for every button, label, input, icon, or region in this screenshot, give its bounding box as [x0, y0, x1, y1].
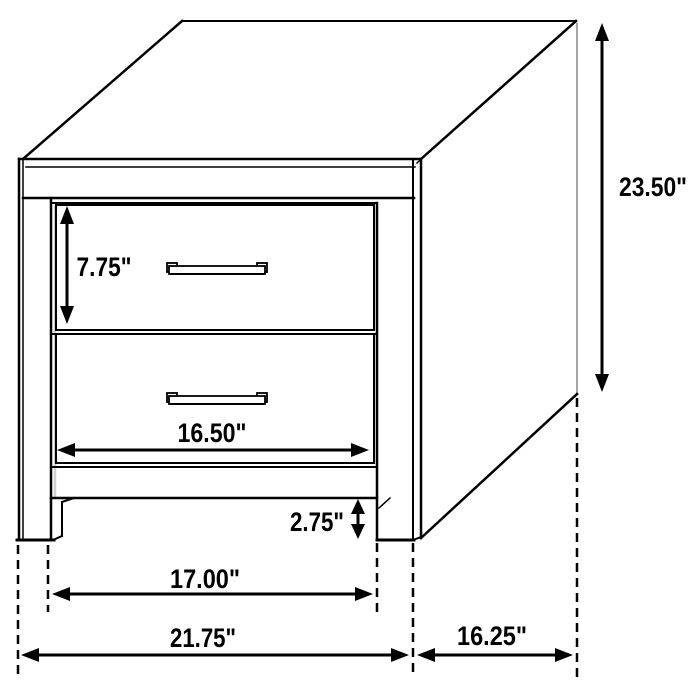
dimension-overall-height: 23.50": [595, 23, 687, 392]
arrowhead-up-icon: [351, 499, 365, 514]
dimension-base-clearance: 2.75": [290, 499, 365, 539]
drawer-height-label: 7.75": [77, 252, 132, 282]
diagram-canvas: 7.75" 23.50" 16.50" 2.75" 17.00" 21.75": [0, 0, 700, 700]
arrowhead-right-icon: [555, 648, 573, 662]
overall-width-label: 21.75": [170, 623, 236, 653]
arrowhead-right-icon: [391, 648, 409, 662]
arrowhead-left-icon: [21, 648, 39, 662]
arrowhead-up-icon: [595, 23, 609, 41]
arrowhead-down-icon: [351, 524, 365, 539]
base-clearance-label: 2.75": [290, 507, 344, 537]
nightstand-dimension-diagram: 7.75" 23.50" 16.50" 2.75" 17.00" 21.75": [0, 0, 700, 700]
top-right-edge-inner: [417, 26, 570, 163]
left-leg-bottom-slant: [53, 536, 62, 540]
side-panel: [413, 23, 577, 540]
leg-inner-width-label: 17.00": [170, 564, 240, 594]
drawer-1-handle-bar: [169, 266, 265, 274]
side-bottom-edge: [421, 394, 577, 538]
top-panel: [19, 21, 576, 167]
dimension-overall-depth: 16.25": [417, 621, 573, 662]
right-leg-bottom-slant: [413, 537, 421, 540]
dimension-overall-width: 21.75": [21, 623, 409, 662]
dimension-leg-inner-width: 17.00": [52, 564, 373, 601]
arrowhead-left-icon: [52, 587, 70, 601]
overall-height-label: 23.50": [619, 172, 687, 202]
drawer-2-handle-bar: [169, 396, 265, 404]
overall-depth-label: 16.25": [457, 621, 527, 651]
arrowhead-right-icon: [355, 587, 373, 601]
right-leg-corbel: [379, 498, 390, 508]
arrowhead-down-icon: [595, 374, 609, 392]
drawer-width-label: 16.50": [178, 418, 247, 448]
top-left-edge: [23, 21, 182, 159]
arrowhead-left-icon: [417, 648, 435, 662]
